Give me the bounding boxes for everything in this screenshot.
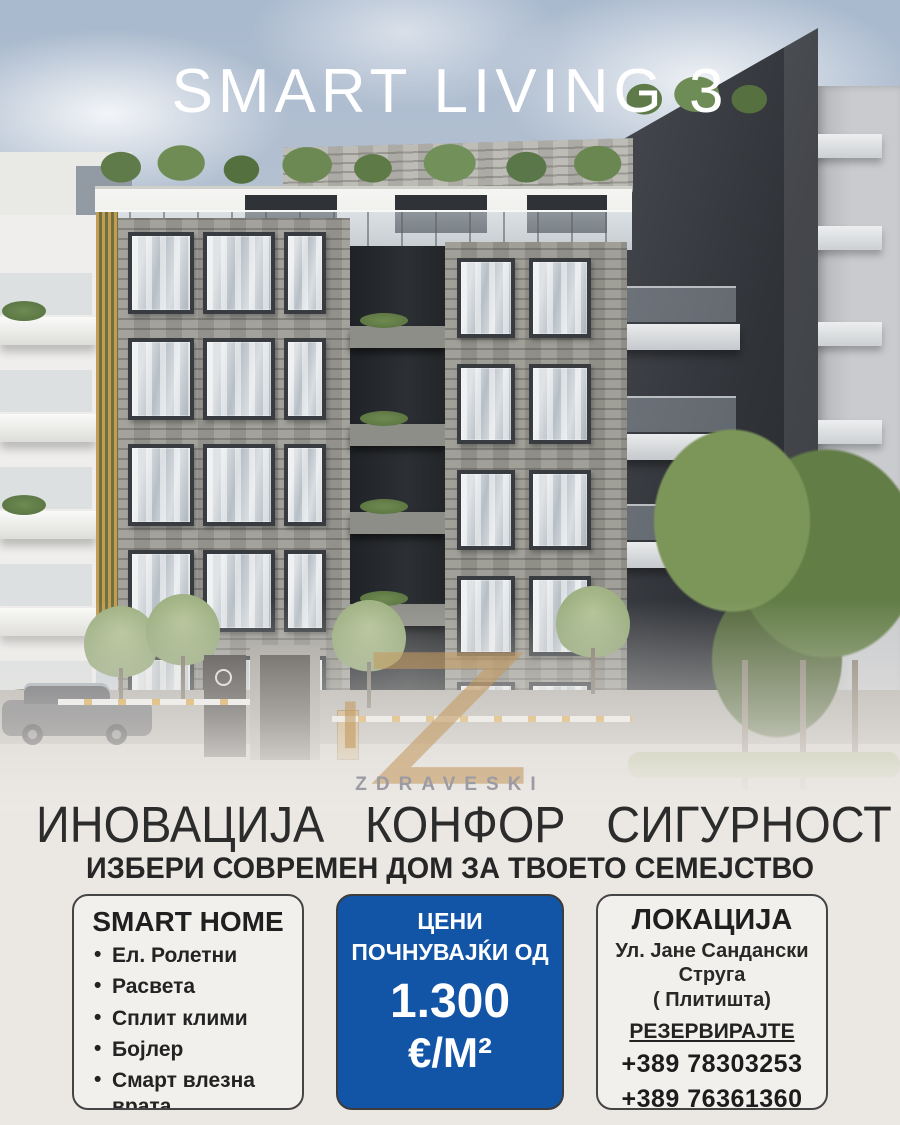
- window: [529, 470, 591, 550]
- window: [529, 364, 591, 444]
- balcony-slab: [808, 322, 882, 346]
- balcony: [0, 370, 96, 442]
- balcony-slab: [808, 134, 882, 158]
- smart-home-box: SMART HOME Ел. Ролетни Расвета Сплит кли…: [72, 894, 304, 1110]
- window: [457, 470, 515, 550]
- balcony-slab: [0, 414, 96, 442]
- reserve-label: РЕЗЕРВИРАЈТЕ: [629, 1020, 794, 1044]
- balcony-slab: [0, 317, 96, 345]
- list-item: Ел. Ролетни: [112, 943, 292, 969]
- zdraveski-z-logo-icon: [330, 645, 538, 791]
- balcony-slab: [808, 226, 882, 250]
- address-line: Ул. Јане Сандански: [598, 939, 826, 963]
- window: [284, 338, 326, 420]
- balcony-glass: [0, 370, 92, 412]
- poster-title: SMART LIVING 3: [0, 56, 900, 127]
- plant: [2, 301, 46, 321]
- info-boxes-row: SMART HOME Ел. Ролетни Расвета Сплит кли…: [0, 894, 900, 1110]
- balcony: [620, 286, 740, 350]
- balcony-slab: [350, 424, 445, 446]
- headline: ИНОВАЦИЈА КОНФОР СИГУРНОСТ: [36, 795, 864, 854]
- balcony-slab: [620, 324, 740, 350]
- list-item: Сплит клими: [112, 1006, 292, 1032]
- list-item: Расвета: [112, 974, 292, 1000]
- location-box: ЛОКАЦИЈА Ул. Јане Сандански Струга ( Пли…: [596, 894, 828, 1110]
- price-unit: €/М²: [338, 1029, 562, 1077]
- price-label-line2: ПОЧНУВАЈЌИ ОД: [338, 939, 562, 966]
- subheadline: ИЗБЕРИ СОВРЕМЕН ДОМ ЗА ТВОЕТО СЕМЕЈСТВО: [18, 852, 882, 886]
- window: [203, 444, 275, 526]
- window: [284, 232, 326, 314]
- list-item: Бојлер: [112, 1037, 292, 1063]
- phone-number: +389 76361360: [598, 1085, 826, 1110]
- balcony-glass: [624, 286, 736, 322]
- balcony: [0, 273, 96, 345]
- list-item: Смарт влезна врата: [112, 1068, 292, 1110]
- balcony: [0, 467, 96, 539]
- window: [529, 258, 591, 338]
- address-line: ( Плитишта): [598, 988, 826, 1012]
- balcony-slab: [0, 511, 96, 539]
- location-title: ЛОКАЦИЈА: [598, 904, 826, 937]
- price-label-line1: ЦЕНИ: [338, 908, 562, 935]
- brand-name: ZDRAVESKI: [0, 774, 900, 796]
- building-render: SMART LIVING 3 ZDRAVESKI: [0, 0, 900, 812]
- plant: [2, 495, 46, 515]
- window: [203, 338, 275, 420]
- price-amount: 1.300: [338, 974, 562, 1029]
- price-box: ЦЕНИ ПОЧНУВАЈЌИ ОД 1.300 €/М²: [336, 894, 564, 1110]
- window: [203, 232, 275, 314]
- phone-number: +389 78303253: [598, 1050, 826, 1079]
- window: [457, 258, 515, 338]
- smart-home-list: Ел. Ролетни Расвета Сплит клими Бојлер С…: [82, 943, 294, 1110]
- window: [128, 444, 194, 526]
- window: [284, 444, 326, 526]
- smart-home-title: SMART HOME: [82, 906, 294, 938]
- window: [128, 338, 194, 420]
- address-line: Струга: [598, 963, 826, 987]
- balcony-slab: [350, 512, 445, 534]
- balcony-slab: [350, 326, 445, 348]
- rooftop-greenery: [88, 130, 636, 190]
- window: [457, 364, 515, 444]
- gold-louver-strip: [96, 212, 118, 648]
- window: [128, 232, 194, 314]
